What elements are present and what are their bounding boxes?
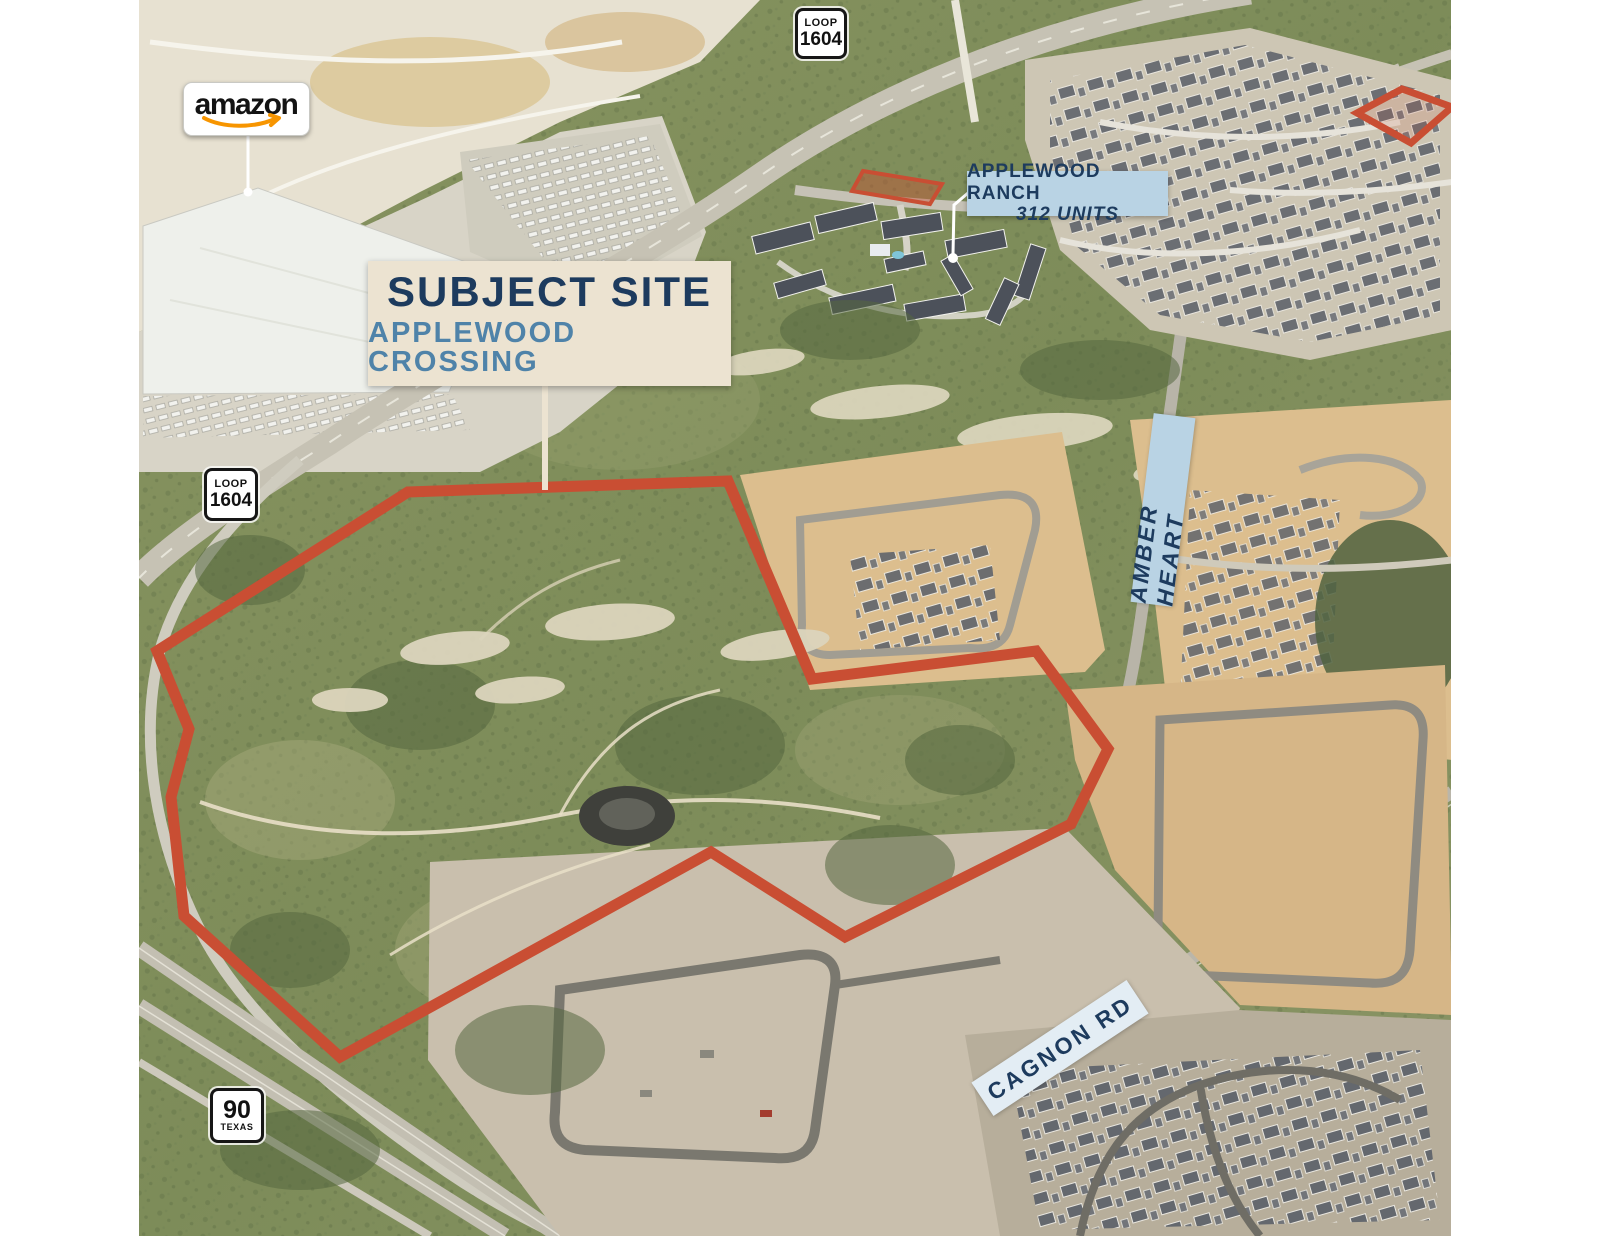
applewood-ranch-title: APPLEWOOD RANCH bbox=[967, 161, 1168, 205]
us-90-shield-number: 90 bbox=[223, 1098, 251, 1123]
map-figure: amazon SUBJECT SITE APPLEWOOD CROSSING A… bbox=[0, 0, 1600, 1236]
applewood-ranch-callout: APPLEWOOD RANCH 312 UNITS bbox=[967, 171, 1168, 216]
applewood-ranch-units: 312 UNITS bbox=[1016, 205, 1119, 226]
amazon-callout: amazon bbox=[183, 82, 310, 136]
subject-site-title: SUBJECT SITE bbox=[387, 271, 712, 313]
loop-1604-shield-north-word: LOOP bbox=[804, 17, 837, 29]
us-90-shield: 90 TEXAS bbox=[210, 1088, 264, 1143]
aerial-photo bbox=[0, 0, 1600, 1236]
loop-1604-shield-west-number: 1604 bbox=[210, 491, 252, 511]
loop-1604-shield-north-number: 1604 bbox=[800, 30, 842, 50]
loop-1604-shield-west-word: LOOP bbox=[214, 478, 247, 490]
amazon-logo-text: amazon bbox=[195, 88, 298, 121]
subject-site-callout: SUBJECT SITE APPLEWOOD CROSSING bbox=[368, 261, 731, 386]
subject-site-subtitle: APPLEWOOD CROSSING bbox=[368, 319, 731, 377]
amazon-logo: amazon bbox=[190, 87, 303, 131]
loop-1604-shield-north: LOOP 1604 bbox=[795, 8, 847, 59]
loop-1604-shield-west: LOOP 1604 bbox=[204, 468, 258, 521]
us-90-shield-state: TEXAS bbox=[220, 1123, 253, 1133]
